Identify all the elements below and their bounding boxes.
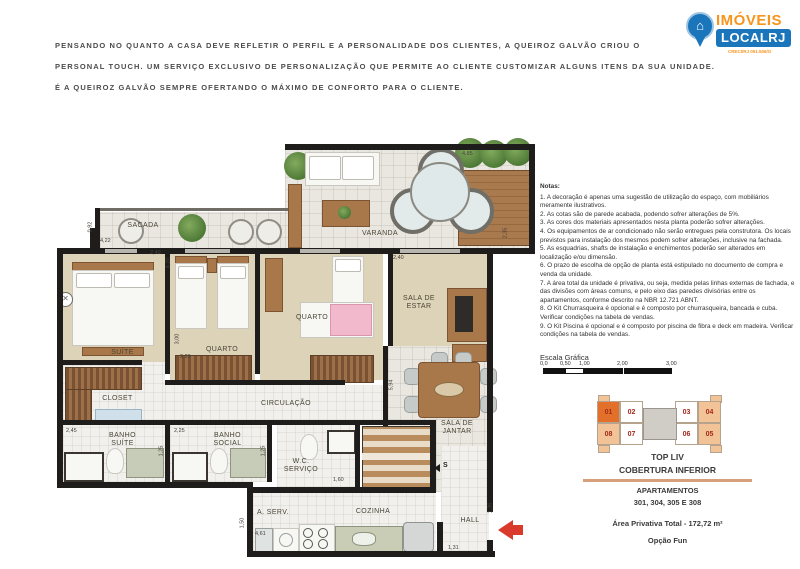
keyplan-unit-02: 02 — [620, 401, 643, 423]
wall-segment — [388, 254, 393, 346]
door-opening — [400, 249, 460, 253]
sofa-cushion — [342, 156, 374, 180]
header-line-2: PERSONAL TOUCH. UM SERVIÇO EXCLUSIVO DE … — [55, 62, 715, 71]
toilet — [300, 434, 318, 460]
divider — [583, 479, 752, 482]
stairs-marker: S — [443, 462, 448, 469]
closet-wardrobe — [65, 389, 92, 422]
wall-segment — [57, 420, 435, 425]
unit-area: Área Privativa Total - 172,72 m² — [575, 519, 760, 528]
wall-segment — [437, 522, 443, 552]
wall-segment — [487, 248, 493, 512]
pink-blanket — [330, 304, 372, 336]
bed-pillow — [220, 266, 246, 279]
nightstand — [207, 258, 217, 273]
door-opening — [300, 249, 340, 253]
scale-tick: 2,00 — [617, 361, 628, 367]
entrance-arrow-icon — [498, 520, 513, 540]
scale-tick: 3,00 — [666, 361, 677, 367]
dim-label: 0,92 — [87, 222, 93, 233]
creci-number: CRECI/RJ 051.506/O — [728, 49, 771, 54]
room-label-hall: HALL — [455, 517, 485, 525]
dim-label: 4,61 — [255, 531, 266, 537]
dim-label: 3,00 — [174, 334, 180, 345]
wall-segment — [529, 144, 535, 254]
dim-label: 5,94 — [388, 380, 394, 391]
closet-wardrobe — [65, 367, 142, 390]
plant-icon — [338, 206, 351, 219]
scale-bar-segment — [584, 368, 623, 374]
scale-bar-segment — [565, 368, 584, 374]
room-label-banho-social: BANHO SOCIAL — [205, 432, 250, 448]
toilet — [210, 448, 228, 474]
wall-segment — [247, 487, 436, 493]
brand-name-top: IMÓVEIS — [716, 12, 782, 29]
fridge — [403, 522, 434, 552]
door-opening — [105, 249, 137, 253]
wall-segment — [57, 360, 142, 365]
plant-icon — [178, 214, 206, 242]
wall-segment — [165, 420, 170, 482]
table-platter — [434, 382, 464, 397]
burner-icon — [318, 539, 328, 549]
toilet — [106, 448, 124, 474]
unit-floor-name: COBERTURA INFERIOR — [575, 465, 760, 475]
burner-icon — [303, 528, 313, 538]
burner-icon — [318, 528, 328, 538]
shower — [172, 452, 208, 482]
wall-segment — [165, 380, 260, 385]
dim-label: 1,36 — [487, 503, 493, 514]
room-label-a-serv: A. SERV. — [253, 509, 293, 517]
notes-block: Notas: 1. A decoração é apenas uma suges… — [540, 183, 798, 340]
dim-label: 1,25 — [260, 446, 266, 457]
dim-label: 4,85 — [462, 151, 473, 157]
room-label-circulacao: CIRCULAÇÃO — [252, 400, 320, 408]
wall-segment — [165, 254, 170, 374]
tv — [455, 296, 473, 332]
burner-icon — [303, 539, 313, 549]
door-opening — [185, 249, 230, 253]
brand-name-bottom: LOCALRJ — [716, 29, 791, 47]
dim-label: 2,49 — [150, 250, 161, 256]
dim-label: 2,35 — [502, 228, 508, 239]
bed-pillow — [114, 273, 150, 288]
plant-icon — [504, 138, 532, 166]
dim-label: 4,22 — [100, 238, 111, 244]
room-label-banho-suite: BANHO SUÍTE — [100, 432, 145, 448]
bed-pillow — [335, 259, 361, 272]
room-label-sala-estar: SALA DE ESTAR — [396, 295, 442, 311]
dim-label: 2,40 — [393, 255, 404, 261]
room-label-cozinha: COZINHA — [348, 508, 398, 516]
map-pin-icon: ⌂ — [686, 12, 714, 40]
keyplan-unit-01: 01 — [597, 401, 620, 423]
unit-info: TOP LIV COBERTURA INFERIOR APARTAMENTOS … — [575, 452, 760, 545]
balcony-chair — [228, 219, 254, 245]
wardrobe — [310, 355, 374, 383]
unit-option: Opção Fun — [575, 536, 760, 545]
balcony-railing — [98, 208, 288, 211]
stairs-landing — [362, 453, 430, 460]
washer-door-icon — [279, 533, 293, 547]
room-label-wc-servico: W.C. SERVIÇO — [280, 458, 322, 474]
keyplan-unit-03: 03 — [675, 401, 698, 423]
room-label-closet: CLOSET — [95, 395, 140, 403]
keyplan-unit-08: 08 — [597, 423, 620, 445]
notes-body: 1. A decoração é apenas uma sugestão de … — [540, 194, 798, 340]
header-line-1: PENSANDO NO QUANTO A CASA DEVE REFLETIR … — [55, 41, 640, 50]
bed-pillow — [178, 266, 204, 279]
wall-segment — [247, 551, 495, 557]
scale-tick: 0,50 — [560, 361, 571, 367]
wall-segment — [355, 420, 360, 487]
scale-bar-segment — [543, 368, 565, 374]
dim-label: 4,20 — [165, 258, 171, 269]
dim-label: 2,45 — [66, 428, 77, 434]
shower — [327, 430, 356, 454]
brand-logo: ⌂ IMÓVEIS LOCALRJ CRECI/RJ 051.506/O — [684, 10, 796, 60]
wall-segment — [267, 420, 272, 482]
unit-building-name: TOP LIV — [575, 452, 760, 462]
entrance-arrow-tail — [513, 525, 523, 535]
dim-label: 1,31 — [448, 545, 459, 551]
sofa-cushion — [309, 156, 341, 180]
dim-label: 1,50 — [239, 518, 245, 529]
wall-segment — [57, 482, 253, 488]
wall-segment — [260, 380, 345, 385]
room-label-varanda: VARANDA — [350, 230, 410, 238]
wall-segment — [285, 144, 535, 150]
spa-tub — [410, 162, 470, 222]
dim-label: 1,60 — [333, 477, 344, 483]
floor-hall — [441, 446, 489, 551]
keyplan-unit-07: 07 — [620, 423, 643, 445]
shelf — [288, 184, 302, 248]
wall-segment — [57, 248, 63, 488]
dim-label: 2,25 — [174, 428, 185, 434]
balcony-chair — [256, 219, 282, 245]
keyplan-core — [643, 408, 677, 440]
wall-segment — [255, 254, 260, 374]
header-line-3: É A QUEIROZ GALVÃO SEMPRE OFERTANDO O MÁ… — [55, 83, 464, 92]
scale-tick: 0,0 — [540, 361, 548, 367]
unit-apartments-numbers: 301, 304, 305 E 308 — [575, 498, 760, 507]
dim-label: 1,25 — [158, 446, 164, 457]
shower — [64, 452, 104, 482]
notes-title: Notas: — [540, 183, 798, 192]
kitchen-sink — [352, 532, 376, 546]
map-pin-tail-icon — [695, 37, 705, 47]
bed-pillow — [76, 273, 112, 288]
keyplan-unit-06: 06 — [675, 423, 698, 445]
flyer-page: PENSANDO NO QUANTO A CASA DEVE REFLETIR … — [0, 0, 800, 569]
room-label-sacada: SACADA — [118, 222, 168, 230]
scale-bar-segment — [624, 368, 672, 374]
desk — [265, 258, 283, 312]
wall-segment — [383, 346, 388, 426]
wall-segment — [487, 540, 493, 557]
dim-label: 2,29 — [180, 354, 191, 360]
room-label-suite: SUÍTE — [100, 349, 145, 357]
room-label-quarto1: QUARTO — [198, 346, 246, 354]
room-label-sala-jantar: SALA DE JANTAR — [434, 420, 480, 436]
scale-tick: 1,00 — [579, 361, 590, 367]
keyplan-unit-05: 05 — [698, 423, 721, 445]
keyplan-unit-04: 04 — [698, 401, 721, 423]
wall-segment — [247, 482, 253, 557]
unit-apartments-label: APARTAMENTOS — [575, 486, 760, 495]
room-label-quarto2: QUARTO — [288, 314, 336, 322]
